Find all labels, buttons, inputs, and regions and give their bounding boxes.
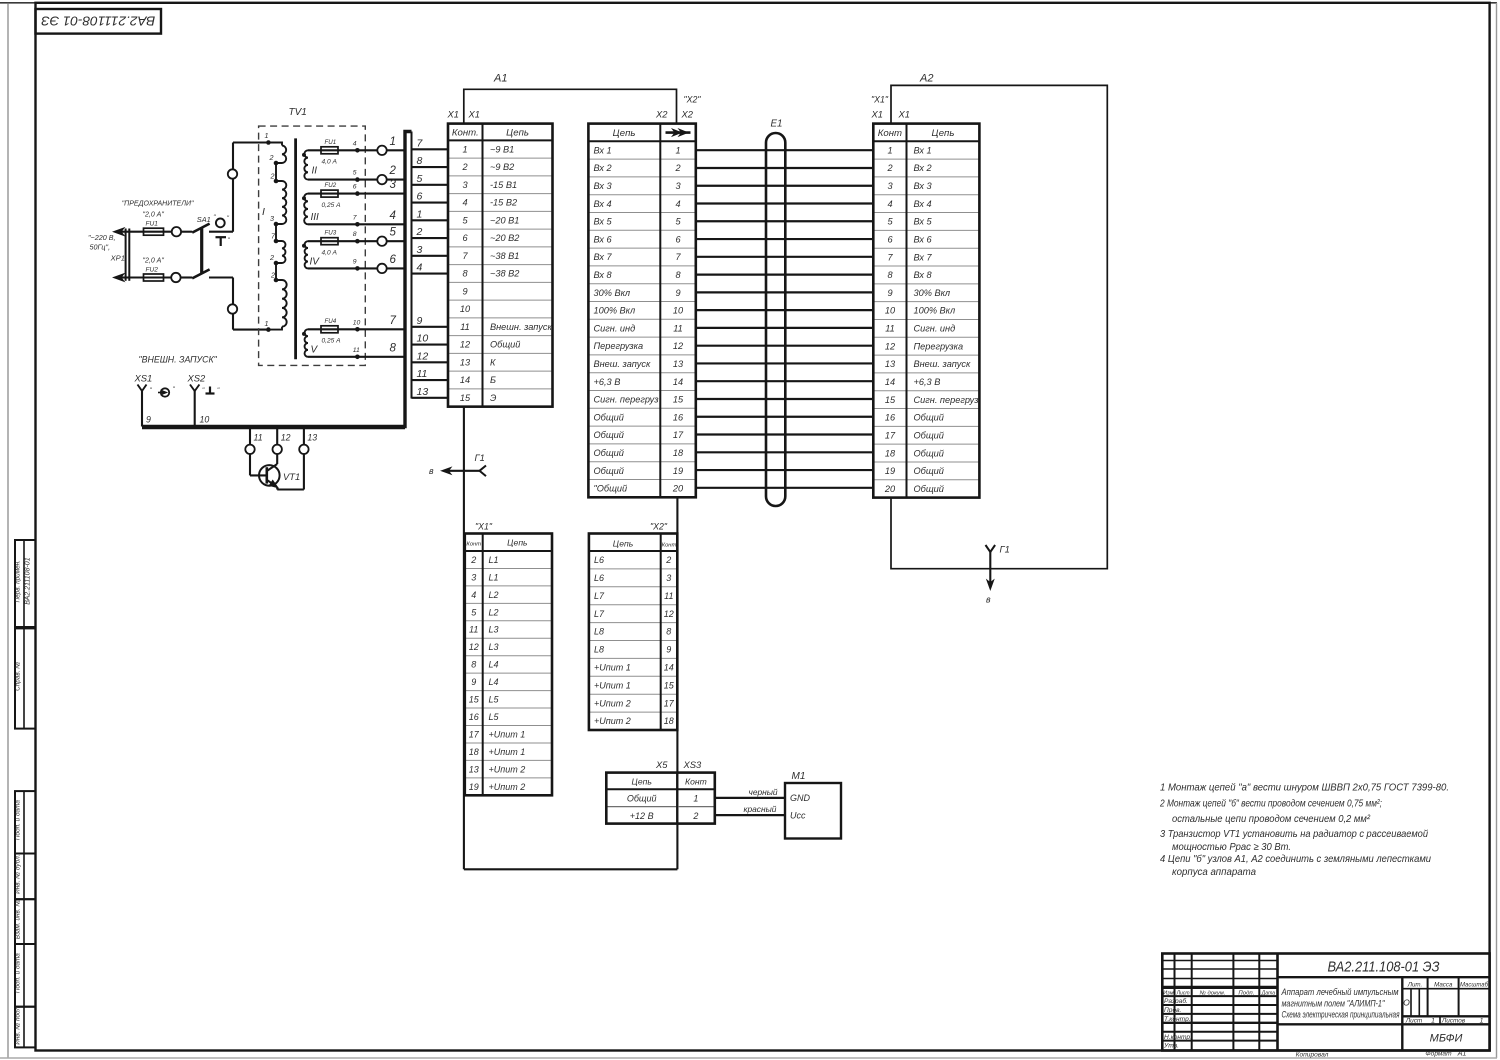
svg-text:Листов: Листов (1441, 1018, 1466, 1025)
svg-text:6: 6 (390, 254, 397, 266)
svg-text:+Uпит 1: +Uпит 1 (594, 663, 631, 673)
svg-text:9: 9 (462, 286, 467, 296)
svg-text:Вх 4: Вх 4 (594, 199, 612, 209)
svg-text:Схема электрическая принципиал: Схема электрическая принципиальная (1282, 1010, 1400, 1020)
svg-text:SA1: SA1 (197, 215, 211, 224)
svg-text:17: 17 (673, 430, 684, 440)
svg-text:Перв. примен.: Перв. примен. (15, 560, 22, 602)
svg-text:5: 5 (675, 217, 681, 227)
svg-text:9: 9 (417, 315, 423, 327)
svg-text:Аппарат лечебный импульсным: Аппарат лечебный импульсным (1281, 987, 1399, 997)
svg-text:3: 3 (471, 572, 476, 582)
svg-text:+6,3 В: +6,3 В (914, 377, 941, 387)
svg-text:17: 17 (664, 698, 675, 708)
svg-text:Сигн. инд: Сигн. инд (594, 323, 636, 333)
svg-text:К: К (490, 357, 496, 367)
svg-text:13: 13 (673, 359, 684, 369)
svg-text:16: 16 (885, 413, 896, 423)
svg-text:ВА2.211108-01: ВА2.211108-01 (25, 557, 32, 604)
svg-text:Х5: Х5 (655, 759, 668, 770)
svg-text:FU1: FU1 (146, 221, 159, 228)
svg-text:4: 4 (390, 210, 396, 222)
svg-text:Общий: Общий (594, 430, 624, 440)
svg-text:1: 1 (390, 136, 396, 148)
svg-text:Копировал: Копировал (1296, 1051, 1329, 1058)
svg-text:Перегрузка: Перегрузка (594, 341, 644, 351)
svg-text:Лист: Лист (1405, 1018, 1423, 1025)
svg-text:15: 15 (469, 695, 480, 705)
svg-text:FU1: FU1 (325, 139, 337, 146)
svg-text:13: 13 (460, 357, 471, 367)
svg-text:Вх 5: Вх 5 (914, 217, 933, 227)
svg-text:Инв. № подл.: Инв. № подл. (14, 1005, 22, 1045)
svg-text:Изм: Изм (1163, 990, 1174, 996)
svg-text:Общий: Общий (914, 484, 944, 494)
svg-text:Вх 3: Вх 3 (914, 181, 933, 191)
svg-text:2: 2 (270, 172, 275, 181)
svg-text:10: 10 (417, 333, 429, 345)
svg-text:Сигн. инд: Сигн. инд (914, 324, 956, 334)
svg-text:4 Цепи "б" узлов А1, А2 соедин: 4 Цепи "б" узлов А1, А2 соединить с земл… (1160, 853, 1431, 865)
svg-text:L7: L7 (594, 591, 605, 601)
svg-text:-15 В1: -15 В1 (490, 180, 517, 190)
svg-text:Вх 1: Вх 1 (594, 145, 612, 155)
svg-text:2: 2 (674, 163, 680, 173)
svg-text:8: 8 (675, 270, 681, 280)
svg-text:Х2: Х2 (681, 109, 694, 120)
svg-text:Общий: Общий (594, 448, 624, 458)
svg-text:13: 13 (469, 764, 479, 774)
svg-text:8: 8 (471, 660, 476, 670)
svg-text:Внеш. запуск: Внеш. запуск (594, 359, 651, 369)
svg-text:5: 5 (417, 173, 423, 185)
svg-text:FU4: FU4 (325, 318, 337, 325)
svg-text:20: 20 (884, 484, 896, 494)
svg-text:4: 4 (353, 140, 357, 147)
svg-text:Х1: Х1 (468, 109, 480, 120)
svg-text:Конт.: Конт. (452, 127, 479, 138)
svg-text:Х2: Х2 (655, 109, 668, 120)
svg-text:L2: L2 (489, 607, 499, 617)
svg-text:Подп. и дата: Подп. и дата (14, 800, 22, 840)
svg-text:Вх 1: Вх 1 (914, 145, 932, 155)
svg-text:+Uпит 1: +Uпит 1 (489, 729, 526, 739)
svg-text:0,25 А: 0,25 А (322, 338, 342, 345)
svg-text:11: 11 (469, 625, 478, 635)
svg-text:Формат: Формат (1425, 1051, 1452, 1058)
svg-text:Внешн. запуск: Внешн. запуск (490, 322, 552, 332)
svg-text:14: 14 (885, 377, 895, 387)
svg-text:7: 7 (353, 214, 357, 221)
svg-text:L1: L1 (489, 555, 499, 565)
svg-text:III: III (311, 212, 320, 223)
svg-text:13: 13 (885, 359, 896, 369)
svg-text:мощностью Ррас ≥ 30 Вт.: мощностью Ррас ≥ 30 Вт. (1172, 842, 1291, 853)
svg-text:3: 3 (270, 214, 274, 223)
svg-text:черный: черный (749, 787, 778, 797)
svg-text:18: 18 (673, 448, 684, 458)
svg-text:Вх 2: Вх 2 (594, 163, 612, 173)
svg-text:Подп.: Подп. (1238, 990, 1254, 996)
svg-text:Вх 6: Вх 6 (594, 234, 613, 244)
svg-text:Конт: Конт (662, 543, 677, 549)
svg-text:Вх 4: Вх 4 (914, 199, 932, 209)
svg-text:9: 9 (471, 677, 476, 687)
svg-text:15: 15 (885, 395, 896, 405)
svg-text:30% Вкл: 30% Вкл (914, 288, 951, 298)
svg-text:+Uпит 1: +Uпит 1 (489, 747, 526, 757)
svg-text:ХР1: ХР1 (110, 253, 125, 262)
svg-text:+6,3 В: +6,3 В (594, 377, 621, 387)
svg-text:IV: IV (310, 256, 321, 267)
svg-text:19: 19 (469, 782, 479, 792)
svg-text:L1: L1 (489, 572, 499, 582)
svg-text:7: 7 (675, 252, 681, 262)
svg-text:Конт: Конт (878, 128, 902, 139)
svg-text:"2,0 А": "2,0 А" (143, 257, 165, 264)
svg-text:14: 14 (664, 663, 674, 673)
svg-text:ВА2.211108-01 ЭЗ: ВА2.211108-01 ЭЗ (41, 14, 155, 29)
svg-text:Общий: Общий (914, 430, 944, 440)
svg-text:1: 1 (675, 145, 680, 155)
svg-text:1 Монтаж цепей "а" вести шнуро: 1 Монтаж цепей "а" вести шнуром ШВВП 2х0… (1160, 783, 1449, 794)
svg-text:2: 2 (389, 165, 397, 177)
svg-text:L3: L3 (489, 642, 499, 652)
svg-text:Вх 2: Вх 2 (914, 163, 932, 173)
svg-text:11: 11 (664, 591, 673, 601)
svg-text:А1: А1 (493, 73, 507, 85)
svg-text:+Uпит 1: +Uпит 1 (594, 680, 631, 690)
svg-text:1: 1 (462, 144, 467, 154)
svg-text:Вх 3: Вх 3 (594, 181, 613, 191)
svg-text:Инв. № дубл.: Инв. № дубл. (14, 854, 22, 893)
svg-text:L4: L4 (489, 677, 499, 687)
svg-text:"Общий: "Общий (594, 484, 628, 494)
svg-text:3: 3 (666, 573, 671, 583)
svg-text:Х1: Х1 (898, 109, 910, 120)
svg-text:~38 В1: ~38 В1 (490, 251, 519, 261)
svg-text:L6: L6 (594, 573, 604, 583)
svg-text:18: 18 (664, 716, 674, 726)
svg-text:Утв.: Утв. (1163, 1043, 1179, 1050)
svg-text:Общий: Общий (914, 413, 944, 423)
svg-text:красный: красный (744, 804, 777, 814)
svg-text:L5: L5 (489, 695, 500, 705)
svg-text:3 Транзистор VТ1 установить на: 3 Транзистор VТ1 установить на радиатор … (1160, 829, 1428, 840)
svg-text:14: 14 (673, 377, 683, 387)
svg-text:30% Вкл: 30% Вкл (594, 288, 631, 298)
svg-text:3: 3 (462, 180, 468, 190)
svg-text:L3: L3 (489, 625, 499, 635)
svg-text:17: 17 (469, 729, 480, 739)
svg-text:100% Вкл: 100% Вкл (914, 306, 956, 316)
svg-text:1: 1 (1480, 1018, 1484, 1025)
svg-text:0,25 А: 0,25 А (322, 202, 342, 209)
svg-text:5: 5 (887, 217, 893, 227)
svg-text:+Uпит 2: +Uпит 2 (489, 782, 526, 792)
svg-text:Х1: Х1 (871, 109, 883, 120)
svg-text:Лист: Лист (1176, 990, 1190, 996)
svg-text:8: 8 (390, 342, 397, 354)
svg-text:Масштаб: Масштаб (1460, 982, 1488, 989)
svg-text:~9 В2: ~9 В2 (490, 162, 514, 172)
svg-text:Общий: Общий (914, 448, 944, 458)
svg-text:2: 2 (269, 153, 274, 162)
svg-text:4: 4 (887, 199, 892, 209)
svg-text:1: 1 (1431, 1018, 1435, 1025)
svg-text:3: 3 (887, 181, 893, 191)
svg-text:А2: А2 (919, 73, 933, 85)
svg-text:+Uпит 2: +Uпит 2 (594, 698, 631, 708)
svg-text:VТ1: VТ1 (283, 471, 300, 482)
svg-text:"Х1": "Х1" (475, 522, 493, 532)
svg-text:Цепь: Цепь (932, 128, 955, 139)
svg-text:Взам. инв. №: Взам. инв. № (15, 900, 22, 940)
svg-text:3: 3 (390, 179, 397, 191)
svg-text:FU2: FU2 (146, 267, 159, 274)
svg-text:2: 2 (270, 271, 275, 280)
svg-text:7: 7 (462, 251, 468, 261)
svg-text:+Uпит 2: +Uпит 2 (594, 716, 631, 726)
svg-text:9: 9 (887, 288, 892, 298)
svg-text:Дата: Дата (1261, 990, 1276, 996)
svg-text:~20 В1: ~20 В1 (490, 215, 519, 225)
svg-text:8: 8 (462, 269, 468, 279)
svg-text:Е1: Е1 (771, 119, 783, 130)
svg-text:Г1: Г1 (475, 452, 485, 463)
svg-text:8: 8 (353, 231, 357, 238)
svg-text:10: 10 (885, 306, 896, 316)
svg-text:"Х1": "Х1" (871, 95, 889, 105)
svg-text:ХS2: ХS2 (187, 373, 207, 384)
svg-text:9: 9 (353, 258, 357, 265)
svg-text:6: 6 (353, 184, 357, 191)
svg-text:11: 11 (417, 368, 428, 380)
svg-text:Разраб.: Разраб. (1164, 997, 1188, 1005)
svg-text:9: 9 (675, 288, 680, 298)
svg-text:Сигн. перегруз: Сигн. перегруз (594, 395, 660, 405)
svg-text:Х1: Х1 (447, 109, 459, 120)
svg-text:12: 12 (460, 340, 470, 350)
svg-text:9: 9 (666, 645, 671, 655)
svg-text:ХS3: ХS3 (683, 759, 703, 770)
svg-text:Справ. №: Справ. № (15, 662, 22, 691)
svg-text:15: 15 (673, 395, 684, 405)
svg-text:4: 4 (417, 262, 423, 274)
svg-text:МБФИ: МБФИ (1430, 1033, 1463, 1045)
svg-text:16: 16 (469, 712, 479, 722)
svg-text:L2: L2 (489, 590, 499, 600)
svg-text:Общий: Общий (914, 466, 944, 476)
svg-text:в: в (986, 595, 991, 605)
svg-text:Т.контр.: Т.контр. (1164, 1016, 1191, 1023)
svg-text:корпуса аппарата: корпуса аппарата (1172, 867, 1256, 878)
svg-text:11: 11 (885, 324, 895, 334)
svg-text:12: 12 (673, 341, 683, 351)
svg-text:GND: GND (790, 793, 811, 803)
svg-text:7: 7 (887, 252, 893, 262)
svg-text:Вх 7: Вх 7 (594, 252, 613, 262)
svg-text:ХS1: ХS1 (134, 373, 153, 384)
svg-text:6: 6 (417, 191, 423, 203)
svg-text:~20 В2: ~20 В2 (490, 233, 519, 243)
svg-text:Масса: Масса (1434, 982, 1453, 989)
svg-text:"ВНЕШН. ЗАПУСК": "ВНЕШН. ЗАПУСК" (139, 355, 218, 365)
svg-text:50Гц",: 50Гц", (90, 243, 111, 252)
svg-text:5: 5 (353, 170, 357, 177)
svg-text:+12 В: +12 В (630, 811, 654, 821)
svg-text:Цепь: Цепь (506, 127, 529, 138)
svg-text:20: 20 (672, 484, 684, 494)
svg-text:Ucc: Ucc (790, 810, 806, 820)
svg-text:L4: L4 (489, 660, 499, 670)
svg-text:8: 8 (417, 155, 423, 167)
svg-text:А1: А1 (1457, 1049, 1467, 1058)
svg-text:5: 5 (390, 227, 397, 239)
svg-text:О: О (1403, 998, 1410, 1008)
svg-text:18: 18 (469, 747, 479, 757)
svg-text:1: 1 (693, 794, 698, 804)
svg-text:1: 1 (887, 145, 892, 155)
svg-text:Сигн. перегруз: Сигн. перегруз (914, 395, 980, 405)
svg-text:3: 3 (417, 244, 423, 256)
svg-text:М1: М1 (792, 771, 806, 782)
svg-text:2: 2 (269, 253, 274, 262)
svg-text:1: 1 (265, 131, 269, 140)
svg-text:Вх 7: Вх 7 (914, 252, 933, 262)
svg-text:Н.контр.: Н.контр. (1164, 1034, 1192, 1041)
svg-text:-15 В2: -15 В2 (490, 198, 517, 208)
svg-text:Общий: Общий (594, 466, 624, 476)
svg-text:Лит.: Лит. (1407, 982, 1423, 989)
svg-text:Перегрузка: Перегрузка (914, 341, 964, 351)
svg-text:Общий: Общий (627, 794, 657, 804)
svg-text:"2,0 А": "2,0 А" (143, 212, 165, 219)
svg-text:17: 17 (885, 430, 896, 440)
svg-text:Вх 8: Вх 8 (594, 270, 613, 280)
svg-text:Пров.: Пров. (1164, 1007, 1182, 1014)
svg-text:Конт: Конт (685, 776, 707, 786)
svg-text:2 Монтаж цепей "б" вести прово: 2 Монтаж цепей "б" вести проводом сечени… (1159, 798, 1382, 810)
svg-text:Конт: Конт (466, 542, 481, 548)
svg-text:Г1: Г1 (1000, 544, 1010, 555)
svg-text:магнитным полем "АЛИМП-1": магнитным полем "АЛИМП-1" (1282, 998, 1386, 1008)
svg-text:19: 19 (673, 466, 683, 476)
svg-text:11: 11 (254, 433, 263, 443)
svg-text:14: 14 (460, 375, 470, 385)
svg-text:3: 3 (675, 181, 681, 191)
svg-text:Общий: Общий (594, 412, 624, 422)
svg-text:10: 10 (673, 306, 684, 316)
svg-text:Э: Э (490, 393, 497, 403)
svg-text:ВА2.211.108-01 ЭЗ: ВА2.211.108-01 ЭЗ (1328, 960, 1440, 976)
svg-text:10: 10 (200, 415, 210, 425)
svg-text:FU2: FU2 (325, 182, 337, 189)
svg-text:12: 12 (469, 642, 479, 652)
svg-text:Б: Б (490, 375, 496, 385)
svg-text:2: 2 (470, 555, 476, 565)
svg-text:5: 5 (462, 215, 468, 225)
svg-text:№ докум.: № докум. (1200, 990, 1226, 996)
svg-text:~9 В1: ~9 В1 (490, 144, 514, 154)
svg-text:16: 16 (673, 412, 684, 422)
svg-text:FU3: FU3 (325, 230, 337, 237)
svg-text:Вх 5: Вх 5 (594, 217, 613, 227)
svg-text:11: 11 (353, 347, 360, 354)
svg-text:Вх 8: Вх 8 (914, 270, 933, 280)
svg-text:4,0 А: 4,0 А (322, 159, 338, 166)
svg-text:2: 2 (665, 555, 671, 565)
svg-text:6: 6 (675, 234, 681, 244)
svg-text:13: 13 (417, 386, 429, 398)
svg-text:II: II (312, 166, 318, 177)
svg-text:2: 2 (692, 811, 698, 821)
svg-text:2: 2 (416, 226, 423, 238)
svg-text:~38 В2: ~38 В2 (490, 269, 519, 279)
svg-text:Цепь: Цепь (613, 539, 634, 549)
svg-text:18: 18 (885, 448, 896, 458)
svg-text:6: 6 (887, 234, 893, 244)
svg-text:10: 10 (460, 304, 471, 314)
svg-text:L5: L5 (489, 712, 500, 722)
svg-text:остальные цепи проводом сечени: остальные цепи проводом сечением 0,2 мм² (1172, 814, 1371, 825)
svg-text:12: 12 (885, 341, 895, 351)
svg-text:15: 15 (460, 393, 471, 403)
svg-text:11: 11 (460, 322, 470, 332)
svg-text:15: 15 (664, 680, 675, 690)
svg-text:4: 4 (675, 199, 680, 209)
svg-text:Подп. и дата: Подп. и дата (14, 953, 22, 993)
svg-text:Общий: Общий (490, 340, 520, 350)
svg-text:4: 4 (462, 198, 467, 208)
svg-text:Цепь: Цепь (507, 538, 528, 548)
svg-text:9: 9 (146, 415, 151, 425)
svg-text:12: 12 (281, 433, 291, 443)
svg-text:"Х2": "Х2" (650, 522, 668, 532)
svg-text:"ПРЕДОХРАНИТЕЛИ": "ПРЕДОХРАНИТЕЛИ" (122, 201, 194, 208)
svg-text:ТV1: ТV1 (289, 107, 307, 118)
svg-text:Цепь: Цепь (631, 776, 652, 786)
svg-text:в: в (429, 466, 434, 476)
svg-text:L8: L8 (594, 627, 604, 637)
svg-text:L6: L6 (594, 555, 604, 565)
svg-text:12: 12 (417, 350, 429, 362)
svg-text:Внеш. запуск: Внеш. запуск (914, 359, 971, 369)
svg-text:1: 1 (417, 208, 423, 220)
svg-text:2: 2 (461, 162, 467, 172)
svg-text:+Uпит 2: +Uпит 2 (489, 764, 526, 774)
svg-text:6: 6 (462, 233, 468, 243)
svg-text:8: 8 (887, 270, 893, 280)
svg-text:8: 8 (666, 627, 671, 637)
svg-text:100% Вкл: 100% Вкл (594, 306, 636, 316)
svg-text:4: 4 (471, 590, 476, 600)
svg-text:7: 7 (390, 315, 397, 327)
svg-text:L7: L7 (594, 609, 605, 619)
svg-text:11: 11 (673, 323, 683, 333)
svg-text:Вх 6: Вх 6 (914, 234, 933, 244)
svg-text:2: 2 (886, 163, 892, 173)
svg-text:I: I (262, 206, 265, 218)
svg-text:4,0 А: 4,0 А (322, 249, 338, 256)
svg-text:19: 19 (885, 466, 895, 476)
svg-text:10: 10 (353, 319, 361, 326)
svg-text:13: 13 (307, 433, 317, 443)
svg-text:12: 12 (664, 609, 674, 619)
svg-text:L8: L8 (594, 645, 604, 655)
svg-text:"Х2": "Х2" (684, 95, 702, 105)
svg-text:1: 1 (265, 319, 269, 328)
